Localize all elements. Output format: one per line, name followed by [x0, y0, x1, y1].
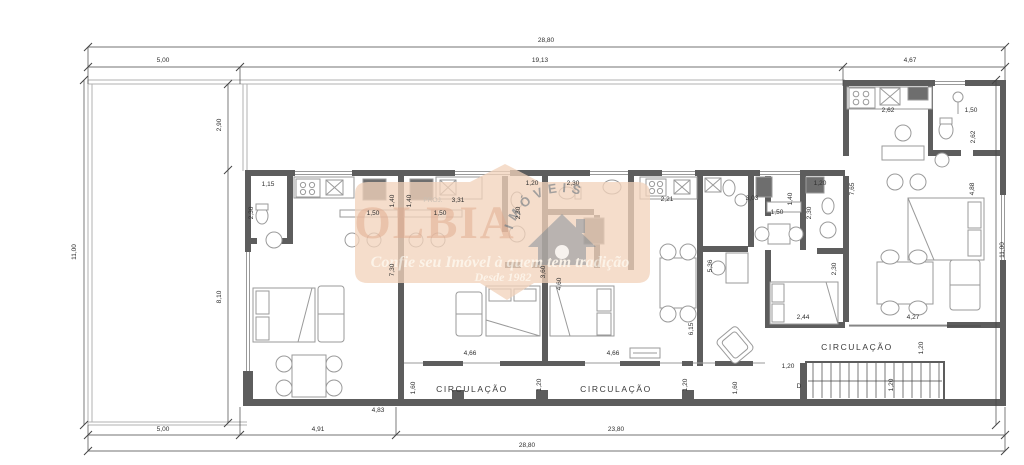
basin: [935, 153, 949, 167]
dimension-label: 4,60: [556, 277, 563, 290]
dimension-label: 4,66: [607, 350, 620, 357]
table: [768, 224, 790, 244]
dimension-label: 23,80: [608, 426, 625, 433]
basin: [820, 222, 836, 238]
dimension-label: 1,60: [732, 381, 739, 394]
watermark-tagline: Confie seu Imóvel à quem tem tradição: [371, 254, 630, 271]
dimension-label: 5,36: [707, 259, 714, 272]
dimension-label: D: [797, 383, 802, 390]
basin: [266, 232, 282, 248]
watermark-brand: OLBIA: [354, 197, 516, 249]
dimension-label: 2,62: [970, 130, 977, 143]
dimension-label: 2,30: [831, 262, 838, 275]
wash-sink: [908, 87, 928, 100]
room-label: CIRCULAÇÃO: [436, 384, 508, 394]
dimension-label: 2,44: [797, 314, 810, 321]
stove: [296, 179, 320, 197]
dimension-label: 1,50: [771, 209, 784, 216]
dimension-label: 1,20: [888, 378, 895, 391]
dimension-label: 1,50: [965, 107, 978, 114]
dimension-label: 4,91: [312, 426, 325, 433]
dimension-label: PROJ.: [423, 197, 442, 204]
dimension-label: 1,40: [406, 194, 413, 207]
dimension-label: 1,20: [814, 180, 827, 187]
dimension-label: 2,30: [515, 206, 522, 219]
dimension-label: 1,40: [389, 194, 396, 207]
floor-plan-page: OLBIA IMÓVEIS Confie seu Imóvel à quem t…: [0, 0, 1024, 465]
dimension-label: 3,60: [540, 265, 547, 278]
dimension-label: 3,31: [452, 197, 465, 204]
dimension-label: 1,50: [367, 210, 380, 217]
dimension-label: 4,88: [969, 182, 976, 195]
stove: [849, 88, 875, 108]
lounge-chair: [715, 325, 754, 365]
wash-sink: [756, 177, 772, 197]
dimension-label: 28,80: [538, 37, 555, 44]
dimension-label: 1,20: [782, 363, 795, 370]
dimension-label: 3,03: [746, 195, 759, 202]
watermark: OLBIA IMÓVEIS Confie seu Imóvel à quem t…: [354, 164, 650, 300]
dimension-label: 28,80: [519, 442, 536, 449]
dimension-label: 2,21: [661, 196, 674, 203]
floor-plan-drawing: OLBIA IMÓVEIS Confie seu Imóvel à quem t…: [0, 0, 1024, 465]
toilet: [822, 198, 834, 214]
dimension-label: 2,90: [216, 118, 223, 131]
dimension-label: 1,15: [262, 181, 275, 188]
dimension-label: 4,66: [464, 350, 477, 357]
dimension-label: 7,65: [849, 182, 856, 195]
desk: [882, 146, 924, 160]
dimension-label: 7,30: [389, 263, 396, 276]
room-label: CIRCULAÇÃO: [821, 342, 893, 352]
dining-table: [292, 355, 326, 397]
dimension-label: 4,83: [372, 407, 385, 414]
dimension-label: 11,00: [999, 242, 1006, 258]
desk: [726, 253, 748, 283]
dimension-label: 1,20: [526, 180, 539, 187]
dimension-label: 2,30: [806, 206, 813, 219]
dimension-label: 5,00: [157, 57, 170, 64]
room-label: CIRCULAÇÃO: [580, 384, 652, 394]
dimension-label: 4,27: [907, 314, 920, 321]
dimension-label: 11,00: [71, 244, 78, 260]
dining-table: [660, 258, 696, 308]
dimension-label: 19,13: [532, 57, 549, 64]
dimension-label: 1,60: [410, 381, 417, 394]
toilet: [723, 180, 735, 196]
dimension-label: 2,30: [248, 206, 255, 219]
dimension-label: 8,10: [216, 290, 223, 303]
dimension-label: 2,62: [882, 107, 895, 114]
dimension-label: 1,40: [787, 192, 794, 205]
dimension-label: 1,20: [918, 341, 925, 354]
stairs: [806, 362, 944, 400]
dimension-label: 5,00: [157, 426, 170, 433]
watermark-since: Desde 1982: [474, 270, 532, 284]
dining-table: [877, 262, 933, 304]
dimension-label: 1,50: [434, 210, 447, 217]
dimension-label: 6,15: [688, 322, 695, 335]
dimension-label: 2,30: [567, 180, 580, 187]
shower-head: [953, 92, 963, 102]
dimension-label: 4,67: [904, 57, 917, 64]
dimension-label: 1,20: [536, 378, 543, 391]
dimension-label: 1,20: [682, 378, 689, 391]
